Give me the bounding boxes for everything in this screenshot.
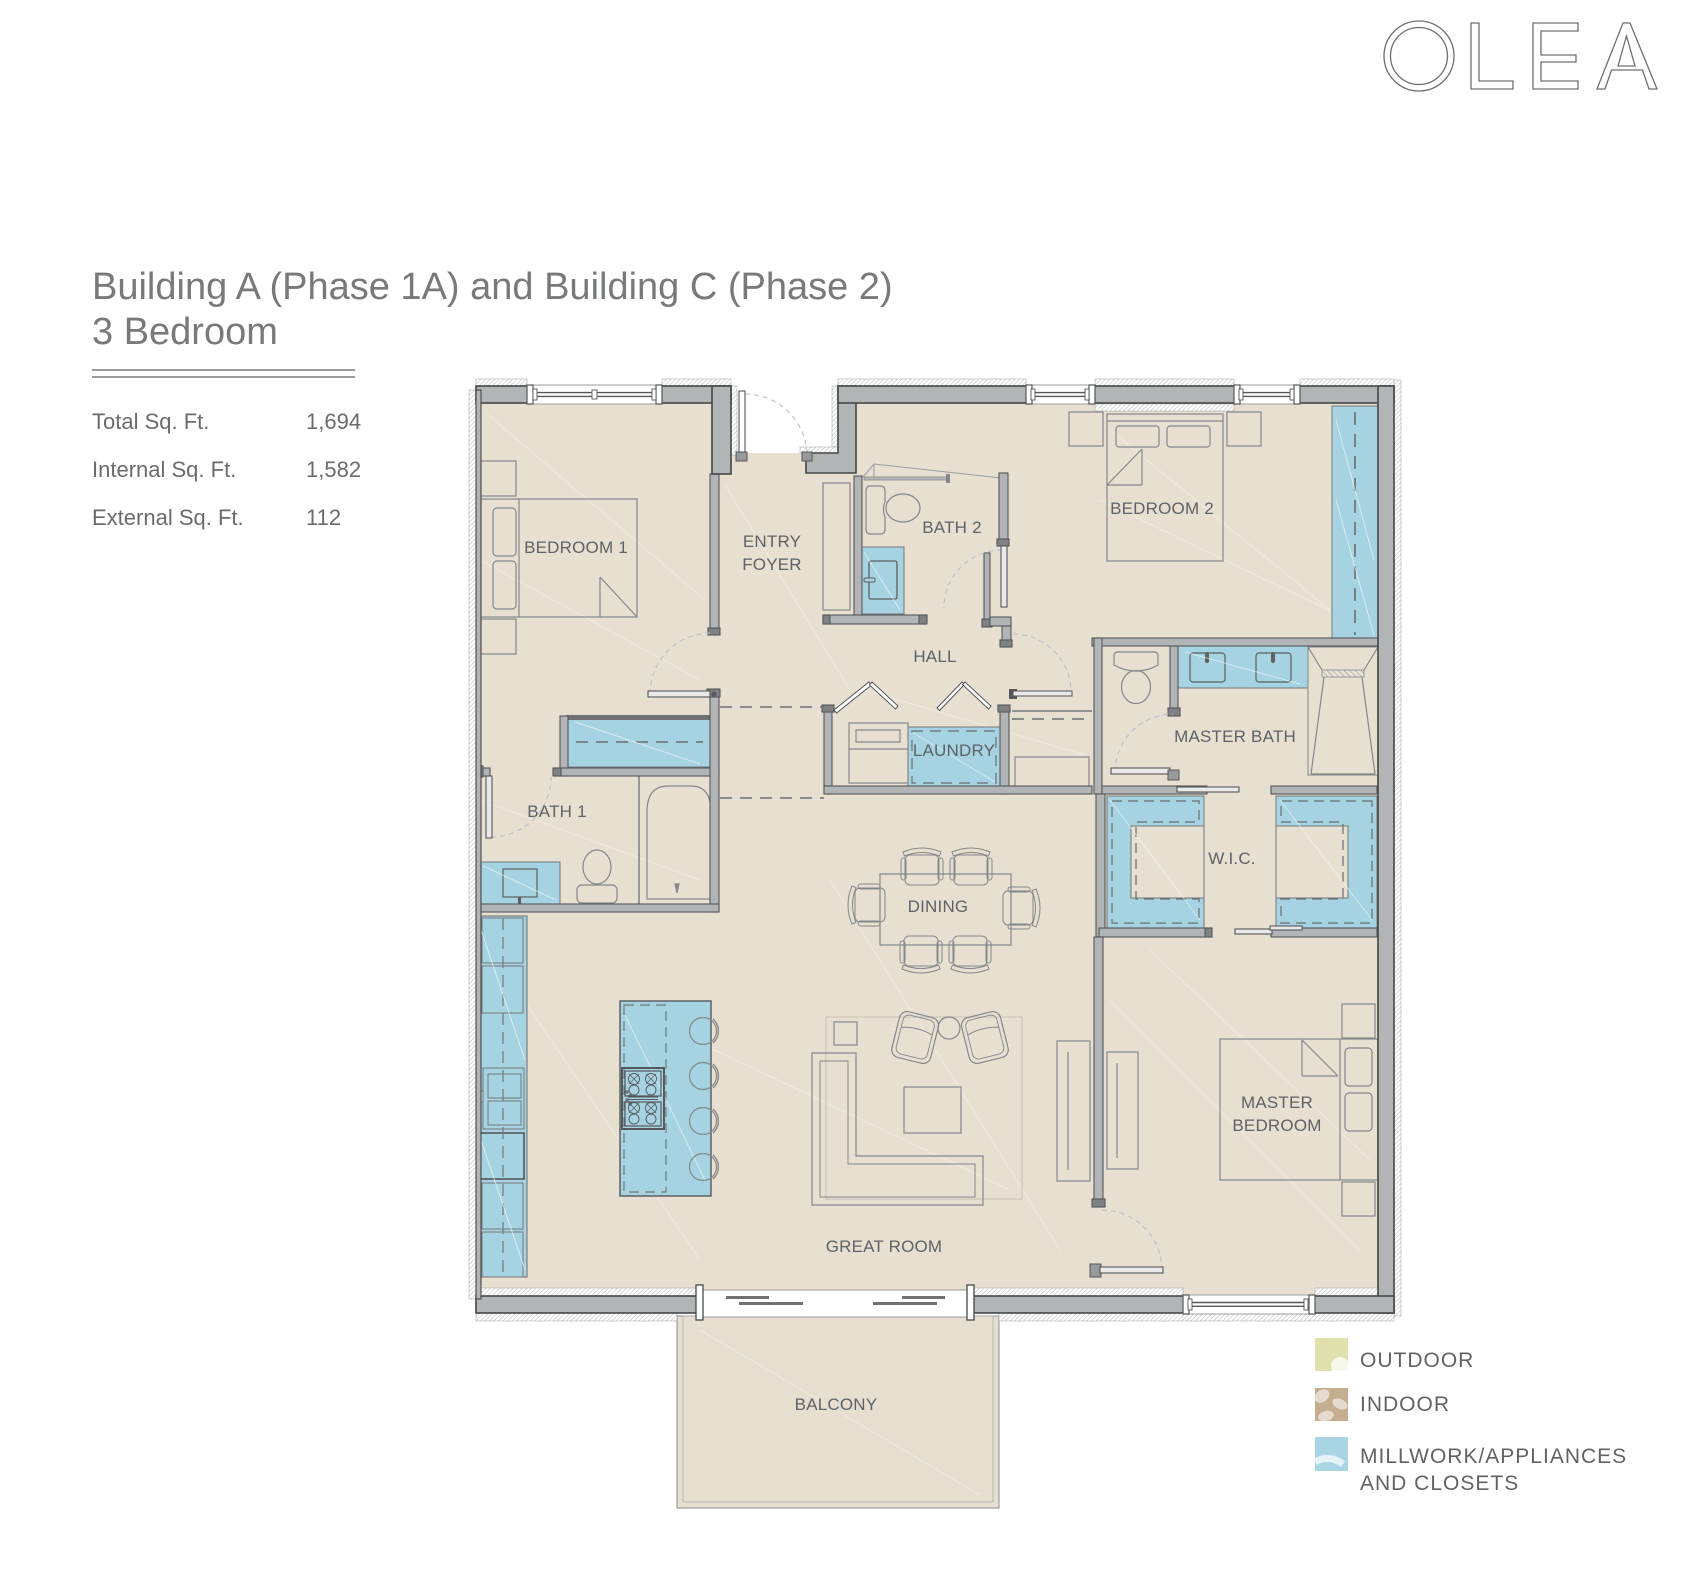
svg-text:ENTRY: ENTRY [743,532,801,551]
svg-text:Total Sq. Ft.: Total Sq. Ft. [92,409,209,434]
svg-text:GREAT ROOM: GREAT ROOM [826,1237,943,1256]
svg-text:MASTER BATH: MASTER BATH [1174,727,1296,746]
svg-text:Building A (Phase 1A) and Buil: Building A (Phase 1A) and Building C (Ph… [92,266,893,308]
svg-text:MASTER: MASTER [1241,1093,1313,1112]
svg-text:FOYER: FOYER [742,555,802,574]
svg-text:BEDROOM 1: BEDROOM 1 [524,538,628,557]
svg-text:BEDROOM: BEDROOM [1232,1116,1321,1135]
svg-text:BALCONY: BALCONY [795,1395,878,1414]
svg-text:LAUNDRY: LAUNDRY [913,741,995,760]
svg-text:BEDROOM 2: BEDROOM 2 [1110,499,1214,518]
svg-text:BATH 1: BATH 1 [527,802,586,821]
svg-text:112: 112 [306,505,341,530]
svg-text:Internal Sq. Ft.: Internal Sq. Ft. [92,457,236,482]
svg-text:BATH 2: BATH 2 [922,518,981,537]
svg-text:INDOOR: INDOOR [1360,1393,1450,1416]
svg-text:HALL: HALL [913,647,956,666]
svg-text:1,694: 1,694 [306,409,361,434]
svg-text:W.I.C.: W.I.C. [1208,849,1255,868]
svg-text:External Sq. Ft.: External Sq. Ft. [92,505,244,530]
svg-text:AND CLOSETS: AND CLOSETS [1360,1472,1519,1495]
svg-text:MILLWORK/APPLIANCES: MILLWORK/APPLIANCES [1360,1445,1627,1468]
svg-text:DINING: DINING [908,897,969,916]
svg-text:OUTDOOR: OUTDOOR [1360,1349,1474,1372]
svg-text:1,582: 1,582 [306,457,361,482]
svg-text:3 Bedroom: 3 Bedroom [92,311,278,353]
